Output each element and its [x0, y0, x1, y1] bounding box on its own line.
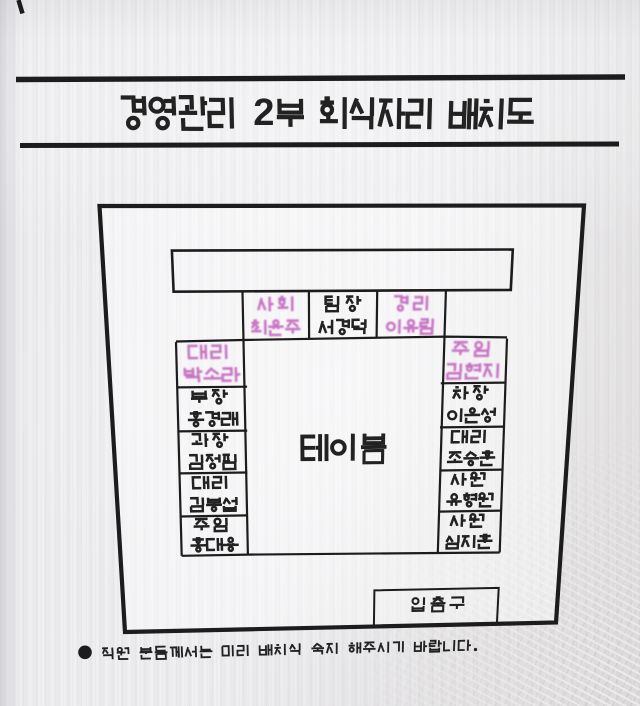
svg-text:2: 2	[253, 92, 274, 134]
